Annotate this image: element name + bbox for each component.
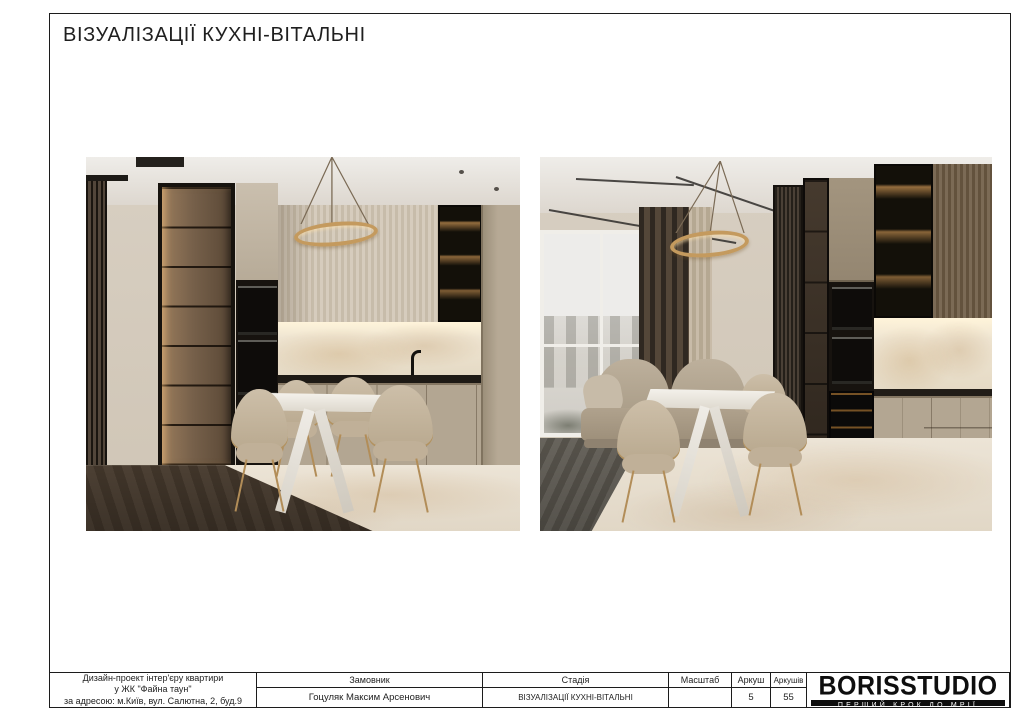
logo-wordmark: BORISSTUDIO [818,673,997,700]
upper-glass-cabinet [438,205,482,322]
built-in-oven [238,340,277,394]
scale-cell: Масштаб [669,673,732,707]
dining-chair [231,389,287,512]
fluted-panel [933,164,992,329]
microwave-oven [238,286,277,335]
scale-value [669,688,731,707]
microwave-oven [832,287,873,330]
chair-leg [271,460,284,512]
page-title: ВІЗУАЛІЗАЦІЇ КУХНІ-ВІТАЛЬНІ [63,24,366,47]
built-in-oven [832,337,873,385]
dining-chair [743,393,806,516]
stage-cell: Стадія ВІЗУАЛІЗАЦІЇ КУХНІ-ВІТАЛЬНІ [483,673,669,707]
chair-seat [373,441,428,461]
chandelier [290,157,381,251]
ceiling-spotlight [494,187,499,191]
chair-leg [235,460,248,512]
chair-leg [621,471,634,523]
chair-seat [622,454,675,474]
fluted-glass-panel [86,181,107,469]
sheet-cell: Аркуш 5 [732,673,771,707]
dining-chair [368,385,433,512]
chair-back [368,385,433,449]
sheets-label: Аркушів [771,673,806,688]
kitchen-render [86,157,520,531]
customer-label: Замовник [257,673,482,688]
sheet-label: Аркуш [732,673,770,688]
sheets-cell: Аркушів 55 [771,673,807,707]
project-description: Дизайн-проект інтер'єру квартири у ЖК "Ф… [50,673,257,707]
borisstudio-logo: BORISSTUDIO ПЕРШИЙ КРОК ДО МРІЇ [807,673,1010,707]
oven-column [829,282,874,390]
scale-label: Масштаб [669,673,731,688]
sheet-number: 5 [732,688,770,707]
chair-seat [748,447,801,467]
chair-back [743,393,806,455]
chair-leg [373,458,386,512]
living-room-render [540,157,992,531]
stage-value: ВІЗУАЛІЗАЦІЇ КУХНІ-ВІТАЛЬНІ [483,688,668,707]
project-line: у ЖК "Файна таун" [50,684,256,696]
glass-shelf-unit [158,183,236,469]
sheets-total: 55 [771,688,806,707]
window-mullion [544,344,640,347]
project-line: за адресою: м.Київ, вул. Салютна, 2, буд… [50,696,256,708]
chair-seat [236,443,283,463]
table-leg [314,408,354,513]
chair-leg [415,458,428,512]
cabinet-door [236,183,278,280]
customer-value: Гоцуляк Максим Арсенович [257,688,482,707]
countertop [874,389,992,396]
project-line: Дизайн-проект інтер'єру квартири [50,673,256,685]
chandelier-cables [290,157,381,224]
title-block: Дизайн-проект інтер'єру квартири у ЖК "Ф… [49,672,1011,708]
chandelier-cables [667,161,753,234]
tall-cabinet [481,205,520,465]
chair-leg [789,463,802,515]
chair-leg [662,471,675,523]
ceiling-vent [136,157,184,167]
backsplash [278,322,481,375]
chair-leg [748,463,761,515]
tall-cabinet-door [829,178,874,283]
stage-label: Стадія [483,673,668,688]
chandelier [667,161,753,262]
dining-chair [617,400,680,523]
customer-cell: Замовник Гоцуляк Максим Арсенович [257,673,483,707]
logo-tagline: ПЕРШИЙ КРОК ДО МРІЇ [811,700,1005,706]
upper-glass-cabinet [874,164,933,317]
faucet [411,350,421,375]
chair-back [617,400,680,462]
chair-back [231,389,287,451]
backsplash [874,318,992,389]
